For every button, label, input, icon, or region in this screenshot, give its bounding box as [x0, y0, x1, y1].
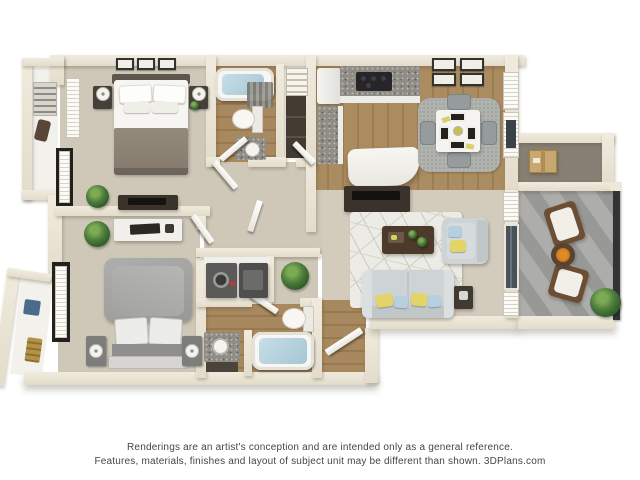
closet-wall-left [22, 58, 32, 200]
range-burner [371, 76, 376, 81]
bedroom2-pillow [114, 317, 149, 346]
linen-cabinet-shelf [286, 136, 306, 138]
bathroom-one-sink [245, 142, 260, 157]
master-bed-pillow-small [124, 102, 150, 113]
master-bed-pillow [119, 84, 153, 104]
bathroom-two-vanity-shelf [206, 362, 238, 372]
dining-window-blinds [503, 72, 519, 110]
refrigerator [317, 68, 341, 104]
dining-centerpiece [453, 126, 463, 136]
bathroom-two-tub-water [259, 338, 307, 364]
balcony-sliding-door-rail [510, 226, 512, 288]
kitchen-counter-front [340, 96, 420, 103]
dining-chair-top [447, 94, 471, 110]
coffee-table-plant [408, 230, 417, 239]
master-picture-frame [158, 58, 176, 70]
tv [352, 191, 400, 200]
wall-bottom-balcony [518, 316, 616, 329]
floor-plan-image: Renderings are an artist's conception an… [0, 0, 640, 480]
wall-hall-kitchen [306, 160, 316, 232]
master-picture-frame [116, 58, 134, 70]
coffee-table-tray-fruit [391, 235, 397, 240]
dining-picture-frame [460, 73, 484, 86]
sofa-pillow-yellow [410, 292, 427, 307]
wall-laundry-top [196, 248, 320, 257]
armchair-pillow-yellow [450, 240, 466, 252]
laundry-nook-plant [281, 262, 309, 290]
sofa-pillow-blue [394, 295, 409, 308]
master-window-curtain [66, 78, 80, 138]
wall-bath2-divider [244, 330, 252, 376]
linen-shelf-towels [286, 68, 308, 96]
storage-box-label [533, 158, 540, 163]
sofa-armrest-left [362, 270, 372, 318]
bedroom2-lamp-left [89, 344, 103, 358]
disclaimer-line-1: Renderings are an artist's conception an… [0, 441, 640, 455]
bedroom2-bed-blanket-fold [112, 266, 184, 316]
closet-wall-top [22, 58, 64, 66]
storage-wall-bottom [518, 182, 614, 191]
dining-placemat [466, 126, 477, 141]
balcony-fruit-bowl [556, 248, 570, 262]
bedroom2-desk-speaker [165, 224, 174, 233]
master-lamp-right [192, 87, 206, 101]
bedroom2-mattress-edge [112, 344, 184, 356]
dining-placemat [439, 126, 450, 141]
range-burner [366, 83, 371, 88]
linen-cabinet-shelf [286, 116, 306, 118]
master-bed-blanket-edge [114, 168, 188, 175]
master-media-tv [128, 198, 166, 205]
bathroom-two-sink [212, 338, 229, 355]
armchair-pillow-blue [448, 226, 462, 237]
wall-bath-linen [276, 64, 284, 162]
bedroom2-laptop [130, 223, 160, 235]
wall-bath2-top [196, 298, 252, 307]
living-window-blinds [503, 192, 519, 222]
bedroom2-headboard [108, 356, 188, 369]
sofa-armrest-right [444, 270, 454, 318]
sofa-back [372, 306, 444, 318]
bedroom2-window-blinds [55, 266, 67, 338]
dining-placemat [449, 112, 466, 122]
bedroom2-pillow [148, 317, 183, 346]
dining-picture-frame [460, 58, 484, 71]
bedroom2-plant [84, 221, 110, 247]
nightstand-plant [190, 101, 199, 110]
dryer-panel [243, 270, 263, 290]
sofa-pillow-blue [428, 294, 442, 307]
bathroom-two-toilet-bowl [282, 308, 306, 329]
washer-door [212, 271, 230, 289]
kitchen-counter-left-edge [338, 106, 343, 164]
master-lamp-left [96, 87, 110, 101]
kitchen-counter-left [317, 106, 338, 164]
master-picture-frame [137, 58, 155, 70]
bathroom-one-shower-curtain [247, 82, 273, 108]
dining-placemat [449, 140, 466, 150]
dining-chair-left [420, 121, 436, 145]
living-side-table-item [459, 291, 468, 300]
entry-closet-item-blue [23, 299, 41, 316]
dining-picture-frame [432, 58, 456, 71]
armchair-back [477, 220, 488, 262]
kitchen-range [356, 72, 392, 91]
disclaimer-line-2: Features, materials, finishes and layout… [0, 455, 640, 469]
storage-wall-top [518, 133, 614, 143]
balcony-railing-post [610, 182, 622, 191]
range-burner [361, 76, 366, 81]
entry-wall-right [365, 328, 378, 383]
master-closet-shelf [33, 82, 57, 116]
balcony-plant [590, 288, 621, 317]
master-window-blinds [59, 151, 70, 203]
master-bed-pillow [153, 84, 187, 104]
wall-master-bath [206, 55, 216, 165]
dining-chair-right [481, 121, 497, 145]
range-burner [381, 76, 386, 81]
storage-box-tape [541, 150, 545, 173]
living-window-blinds [503, 292, 519, 316]
master-bed-pillow-small [152, 102, 178, 113]
sofa-pillow-yellow [375, 293, 394, 308]
master-plant [86, 185, 109, 208]
dining-chair-bottom [447, 152, 471, 168]
coffee-table-plant [417, 237, 427, 247]
dining-picture-frame [432, 73, 456, 86]
bathroom-one-toilet-bowl [232, 109, 255, 129]
dining-window-glass [506, 120, 516, 148]
bedroom2-lamp-right [185, 344, 199, 358]
washer-button-red [230, 281, 235, 286]
